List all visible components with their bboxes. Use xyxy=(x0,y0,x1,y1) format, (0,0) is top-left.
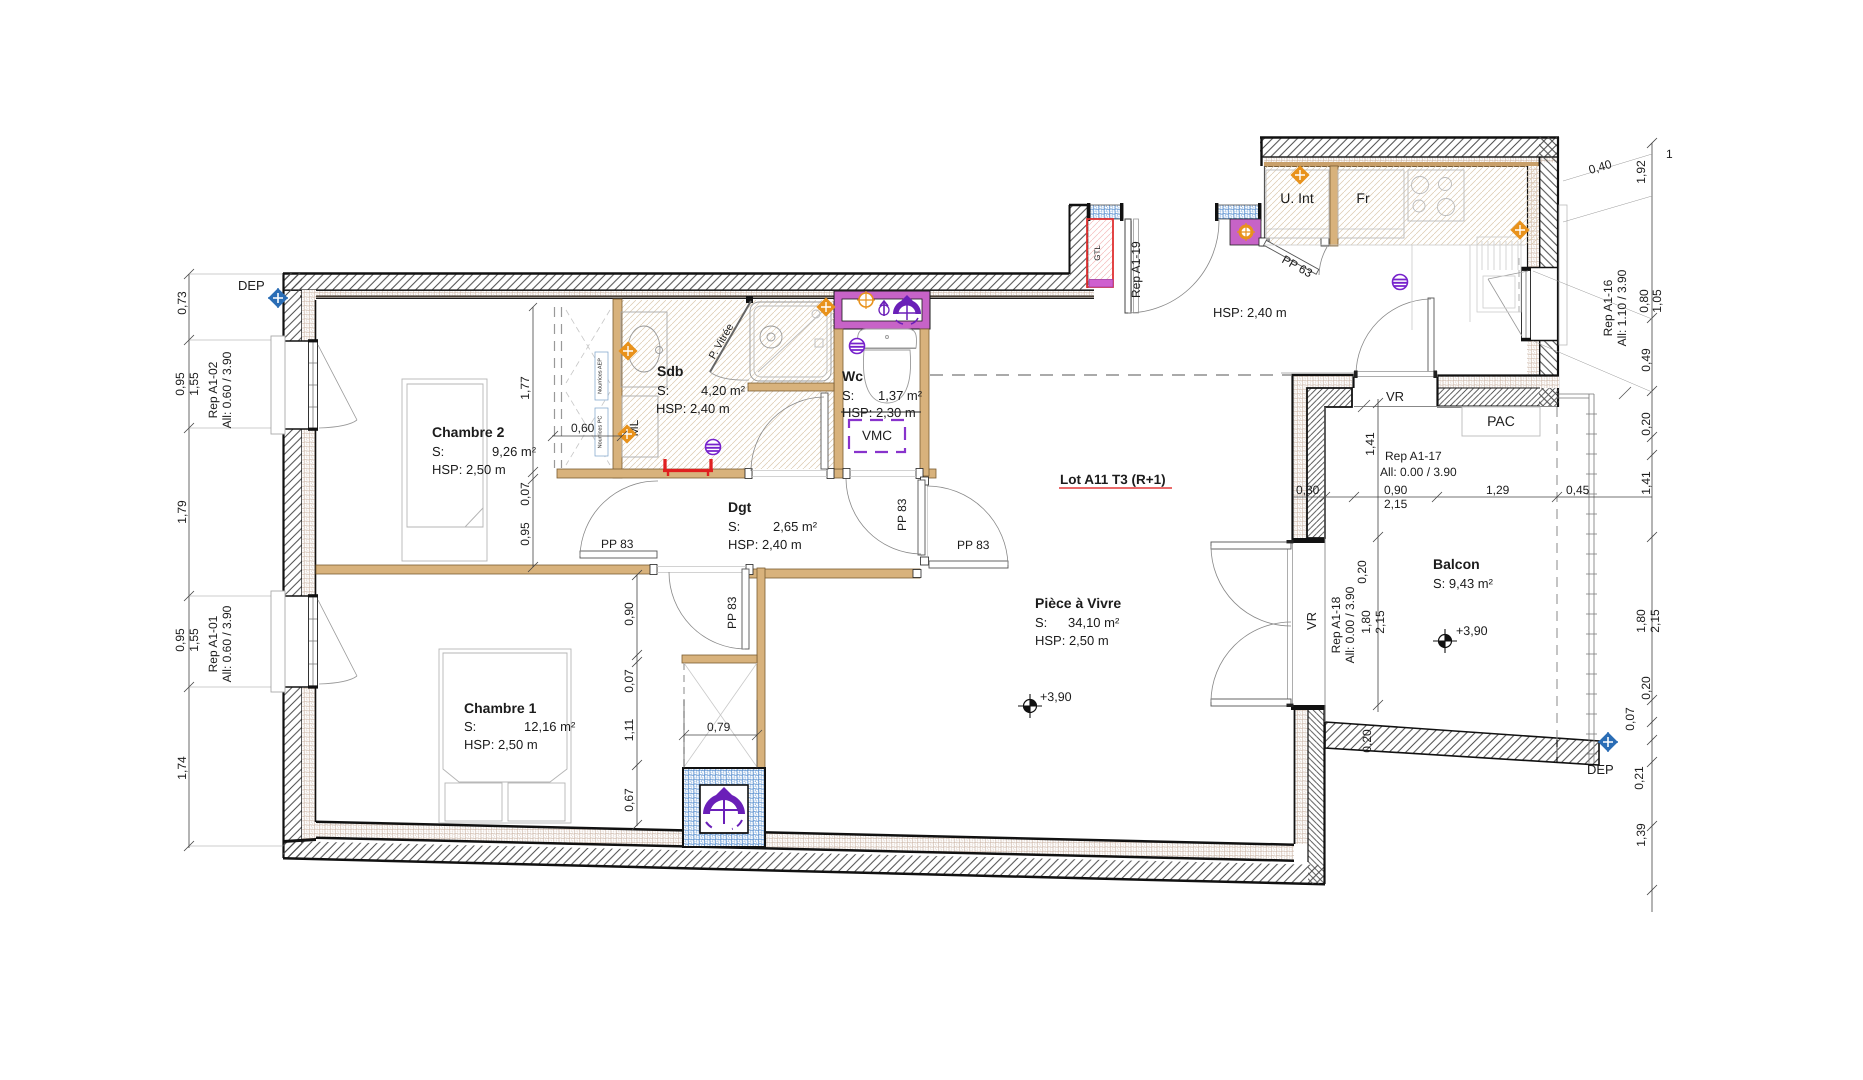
svg-text:HSP: 2,50 m: HSP: 2,50 m xyxy=(464,737,538,752)
svg-text:0,90: 0,90 xyxy=(622,602,636,626)
svg-text:1,77: 1,77 xyxy=(518,376,532,400)
svg-text:Rep A1-18: Rep A1-18 xyxy=(1329,596,1343,653)
svg-text:Nourrices PC: Nourrices PC xyxy=(598,416,604,449)
svg-text:2,15: 2,15 xyxy=(1384,497,1408,511)
svg-text:0,95: 0,95 xyxy=(518,522,532,546)
svg-text:PP 83: PP 83 xyxy=(895,498,909,531)
svg-text:12,16 m²: 12,16 m² xyxy=(524,719,576,734)
svg-text:0,45: 0,45 xyxy=(1566,483,1590,497)
svg-text:0,80: 0,80 xyxy=(1637,289,1651,313)
svg-text:1,41: 1,41 xyxy=(1639,471,1653,495)
svg-text:All: 0.00 / 3.90: All: 0.00 / 3.90 xyxy=(1343,586,1357,663)
svg-text:VMC: VMC xyxy=(862,428,892,443)
svg-text:S:: S: xyxy=(657,383,669,398)
svg-text:Rep A1-19: Rep A1-19 xyxy=(1129,241,1143,298)
svg-text:All: 1.10 / 3.90: All: 1.10 / 3.90 xyxy=(1615,269,1629,346)
svg-text:1,79: 1,79 xyxy=(175,500,189,524)
svg-text:0,20: 0,20 xyxy=(1639,412,1653,436)
svg-text:Lot A11 T3 (R+1): Lot A11 T3 (R+1) xyxy=(1060,472,1166,487)
svg-text:1,92: 1,92 xyxy=(1634,160,1648,184)
svg-text:0,95: 0,95 xyxy=(173,372,187,396)
svg-text:Pièce à Vivre: Pièce à Vivre xyxy=(1035,595,1121,611)
svg-text:0,20: 0,20 xyxy=(1360,729,1374,753)
svg-text:1,55: 1,55 xyxy=(187,628,201,652)
svg-text:1,74: 1,74 xyxy=(175,756,189,780)
svg-text:0,90: 0,90 xyxy=(1384,483,1408,497)
svg-text:PP 83: PP 83 xyxy=(725,596,739,629)
svg-text:0,07: 0,07 xyxy=(622,669,636,693)
svg-text:Rep A1-01: Rep A1-01 xyxy=(206,615,220,672)
svg-text:HSP: 2,40 m: HSP: 2,40 m xyxy=(728,537,802,552)
svg-text:0,95: 0,95 xyxy=(173,628,187,652)
svg-text:0,30: 0,30 xyxy=(1296,483,1320,497)
svg-text:+3,90: +3,90 xyxy=(1456,624,1488,638)
svg-text:+3,90: +3,90 xyxy=(1040,690,1072,704)
svg-text:PAC: PAC xyxy=(1487,413,1515,429)
svg-text:HSP: 2,40 m: HSP: 2,40 m xyxy=(656,401,730,416)
svg-text:Rep A1-02: Rep A1-02 xyxy=(206,361,220,418)
svg-text:1,80: 1,80 xyxy=(1634,609,1648,633)
svg-text:GTL: GTL xyxy=(1093,245,1102,261)
svg-text:0,49: 0,49 xyxy=(1639,348,1653,372)
svg-text:S:: S: xyxy=(728,519,740,534)
svg-text:U. Int: U. Int xyxy=(1280,190,1314,206)
svg-text:Dgt: Dgt xyxy=(728,499,752,515)
svg-text:Sdb: Sdb xyxy=(657,363,683,379)
svg-text:Chambre 2: Chambre 2 xyxy=(432,424,505,440)
svg-text:1,80: 1,80 xyxy=(1359,610,1373,634)
svg-text:DEP: DEP xyxy=(1587,762,1614,777)
svg-text:HSP: 2,40 m: HSP: 2,40 m xyxy=(1213,305,1287,320)
svg-text:Chambre 1: Chambre 1 xyxy=(464,700,537,716)
svg-text:Wc: Wc xyxy=(842,368,863,384)
svg-text:2,65 m²: 2,65 m² xyxy=(773,519,818,534)
svg-text:All: 0.60 / 3.90: All: 0.60 / 3.90 xyxy=(220,351,234,428)
svg-text:S: 9,43 m²: S: 9,43 m² xyxy=(1433,576,1494,591)
svg-text:S:: S: xyxy=(432,444,444,459)
svg-text:0,21: 0,21 xyxy=(1632,766,1646,790)
svg-text:0,67: 0,67 xyxy=(622,788,636,812)
svg-text:34,10 m²: 34,10 m² xyxy=(1068,615,1120,630)
svg-text:Rep A1-16: Rep A1-16 xyxy=(1601,279,1615,336)
svg-text:0,07: 0,07 xyxy=(518,482,532,506)
svg-text:1,29: 1,29 xyxy=(1486,483,1510,497)
svg-text:1,39: 1,39 xyxy=(1634,823,1648,847)
svg-text:0,79: 0,79 xyxy=(707,720,731,734)
svg-text:1: 1 xyxy=(1666,147,1673,161)
svg-text:0,73: 0,73 xyxy=(175,291,189,315)
svg-text:VR: VR xyxy=(1386,389,1404,404)
svg-text:Rep A1-17: Rep A1-17 xyxy=(1385,449,1442,463)
svg-text:All: 0.60 / 3.90: All: 0.60 / 3.90 xyxy=(220,605,234,682)
svg-text:9,26 m²: 9,26 m² xyxy=(492,444,537,459)
svg-text:0,60: 0,60 xyxy=(571,421,595,435)
svg-text:Fr: Fr xyxy=(1356,190,1370,206)
svg-text:PP 83: PP 83 xyxy=(957,538,990,552)
svg-text:1,41: 1,41 xyxy=(1363,432,1377,456)
svg-text:2,15: 2,15 xyxy=(1373,610,1387,634)
svg-text:1,05: 1,05 xyxy=(1650,289,1664,313)
svg-text:DEP: DEP xyxy=(238,278,265,293)
svg-text:1,11: 1,11 xyxy=(622,718,636,741)
svg-text:HSP: 2,50 m: HSP: 2,50 m xyxy=(432,462,506,477)
svg-text:Balcon: Balcon xyxy=(1433,556,1480,572)
svg-text:All: 0.00 / 3.90: All: 0.00 / 3.90 xyxy=(1380,465,1457,479)
svg-text:PP 83: PP 83 xyxy=(601,537,634,551)
svg-text:VR: VR xyxy=(1304,612,1319,630)
svg-text:S:: S: xyxy=(464,719,476,734)
svg-text:0,20: 0,20 xyxy=(1355,560,1369,584)
svg-text:0,07: 0,07 xyxy=(1623,707,1637,731)
svg-text:1,37 m²: 1,37 m² xyxy=(878,388,923,403)
svg-text:1,55: 1,55 xyxy=(187,372,201,396)
svg-text:0,20: 0,20 xyxy=(1639,676,1653,700)
svg-text:4,20 m²: 4,20 m² xyxy=(701,383,746,398)
svg-text:S:: S: xyxy=(842,388,854,403)
svg-text:2,15: 2,15 xyxy=(1648,609,1662,633)
svg-text:Nourrices AEP: Nourrices AEP xyxy=(598,358,604,394)
svg-text:HSP: 2,50 m: HSP: 2,50 m xyxy=(1035,633,1109,648)
svg-text:S:: S: xyxy=(1035,615,1047,630)
